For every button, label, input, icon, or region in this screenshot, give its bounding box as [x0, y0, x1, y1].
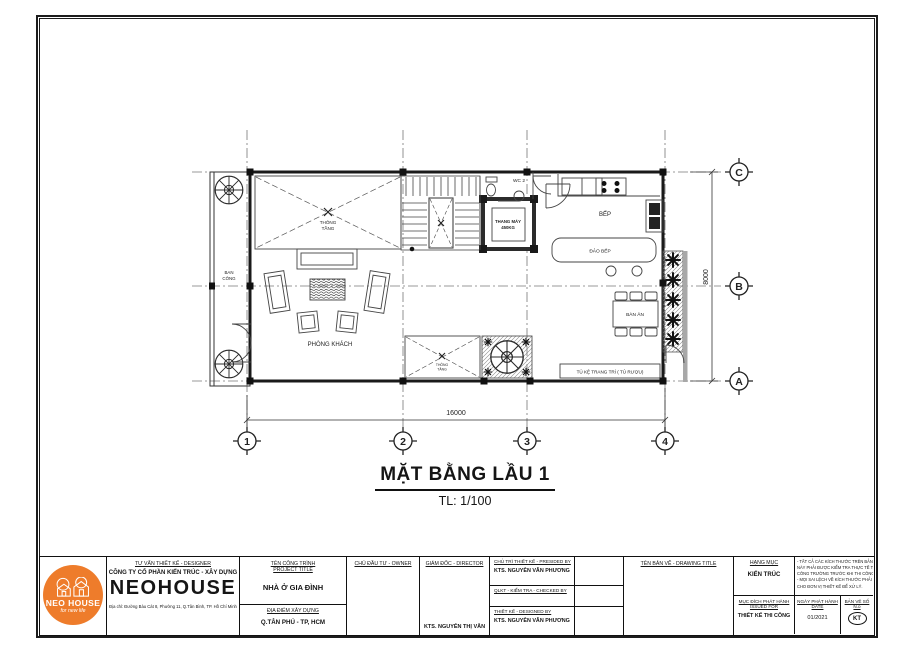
svg-text:THÔNG: THÔNG	[320, 219, 337, 225]
svg-text:8000: 8000	[703, 269, 710, 285]
company-name: NEOHOUSE	[107, 577, 239, 600]
plan-caption: MẶT BẰNG LẦU 1 TL: 1/100	[340, 464, 590, 508]
svg-text:1: 1	[244, 436, 250, 448]
date-cell: NGÀY PHÁT HÀNH DATE 01/2021	[795, 596, 841, 634]
svg-text:2: 2	[400, 436, 406, 448]
director-cell: GIÁM ĐỐC - DIRECTOR KTS. NGUYỄN THỊ VÂN	[420, 557, 490, 635]
designer-heading: TƯ VẤN THIẾT KẾ - DESIGNER	[107, 561, 239, 567]
svg-text:BÀN ĂN: BÀN ĂN	[626, 311, 644, 318]
svg-text:THÔNG: THÔNG	[436, 362, 449, 367]
checked-heading: QLKT - KIỂM TRA - CHECKED BY	[490, 588, 623, 593]
note-line: - MỌI SAI LỆCH VỀ KÍCH THƯỚC PHẢI BÁO	[797, 577, 871, 583]
title-block: NEO HOUSE for new life TƯ VẤN THIẾT KẾ -…	[39, 556, 875, 636]
svg-text:BẾP: BẾP	[599, 211, 611, 218]
planter-square	[482, 336, 532, 378]
svg-text:4: 4	[662, 436, 668, 448]
svg-text:16000: 16000	[446, 410, 466, 417]
number-heading-en: N.o	[841, 604, 873, 609]
designed-name: KTS. NGUYỄN VĂN PHƯƠNG	[490, 618, 623, 624]
svg-text:TẦNG: TẦNG	[322, 225, 335, 231]
director-heading: GIÁM ĐỐC - DIRECTOR	[420, 561, 489, 567]
svg-text:ĐẢO BẾP: ĐẢO BẾP	[589, 248, 610, 255]
company-line: CÔNG TY CỔ PHẦN KIẾN TRÚC - XÂY DỰNG	[107, 570, 239, 576]
balcony-label: CÔNG	[222, 276, 236, 281]
logo-name: NEO HOUSE	[46, 598, 101, 608]
signature-divider	[574, 557, 575, 635]
company-cell: TƯ VẤN THIẾT KẾ - DESIGNER CÔNG TY CỔ PH…	[107, 557, 240, 635]
drawing-title-cell: TÊN BẢN VẼ - DRAWING TITLE	[624, 557, 734, 635]
living-room: PHÒNG KHÁCH	[264, 249, 390, 348]
stairs	[401, 176, 480, 251]
project-cell: TÊN CÔNG TRÌNH PROJECT TITLE NHÀ Ở GIA Đ…	[240, 557, 347, 635]
svg-text:3: 3	[524, 436, 530, 448]
svg-text:TỦ KỆ TRANG TRÍ ( TỦ RƯỢU): TỦ KỆ TRANG TRÍ ( TỦ RƯỢU)	[577, 368, 644, 375]
svg-text:TẦNG: TẦNG	[437, 368, 447, 372]
notes-cell: - TẤT CẢ CÁC KÍCH THƯỚC TRÊN BẢN VẼ NÀY …	[795, 557, 873, 595]
kitchen: BẾP	[546, 174, 663, 232]
issue-info-cell: HẠNG MỤC KIẾN TRÚC - TẤT CẢ CÁC KÍCH THƯ…	[734, 557, 873, 635]
category-value: KIẾN TRÚC	[734, 572, 794, 578]
svg-text:C: C	[735, 167, 743, 179]
shelf: TỦ KỆ TRANG TRÍ ( TỦ RƯỢU)	[560, 364, 660, 378]
drawing-number-cell: BẢN VẼ SỐ N.o KT	[841, 596, 873, 634]
svg-text:WC 2: WC 2	[513, 178, 525, 184]
svg-text:A: A	[735, 376, 743, 388]
houses-icon	[53, 577, 93, 597]
plant-icon	[215, 350, 243, 378]
project-heading-en: PROJECT TITLE	[240, 567, 346, 573]
design-staff-cell: CHỦ TRÌ THIẾT KẾ - PRESIDED BY KTS. NGUY…	[490, 557, 624, 635]
plan-scale: TL: 1/100	[340, 494, 590, 508]
location-heading: ĐỊA ĐIỂM XÂY DỰNG	[240, 608, 346, 614]
void-thong-tang: THÔNG TẦNG	[255, 176, 401, 249]
presided-name: KTS. NGUYỄN VĂN PHƯƠNG	[490, 568, 623, 574]
svg-text:450KG: 450KG	[501, 225, 515, 230]
issued-for-value: THIẾT KẾ THI CÔNG	[734, 613, 794, 619]
category-cell: HẠNG MỤC KIẾN TRÚC	[734, 557, 795, 595]
logo-cell: NEO HOUSE for new life	[40, 557, 107, 635]
drawing-sheet: { "plan": { "title": "MẶT BẰNG LẦU 1", "…	[0, 0, 900, 652]
presided-heading: CHỦ TRÌ THIẾT KẾ - PRESIDED BY	[490, 559, 623, 564]
issued-heading-en: ISSUED FOR	[734, 604, 794, 609]
grid-lines	[192, 130, 721, 432]
drawing-title-heading: TÊN BẢN VẼ - DRAWING TITLE	[624, 561, 733, 567]
drawing-number-badge: KT	[848, 612, 867, 625]
date-heading-en: DATE	[795, 604, 840, 609]
columns	[209, 169, 667, 385]
planter-strip	[663, 251, 688, 382]
svg-text:B: B	[735, 281, 743, 293]
dimension-width: 16000	[244, 388, 668, 427]
owner-heading: CHỦ ĐẦU TƯ - OWNER	[347, 561, 419, 567]
owner-cell: CHỦ ĐẦU TƯ - OWNER	[347, 557, 420, 635]
plant-icon	[215, 176, 243, 204]
plan-title: MẶT BẰNG LẦU 1	[375, 464, 555, 491]
dining-set: BÀN ĂN	[613, 292, 658, 336]
director-name: KTS. NGUYỄN THỊ VÂN	[420, 624, 489, 630]
date-value: 01/2021	[795, 615, 840, 621]
logo-tagline: for new life	[60, 608, 85, 614]
location-value: Q.TÂN PHÚ - TP, HCM	[240, 619, 346, 626]
void-small: THÔNG TẦNG	[405, 336, 480, 378]
elevator: THANG MÁY 450KG	[479, 195, 538, 253]
project-name: NHÀ Ở GIA ĐÌNH	[240, 583, 346, 592]
designed-heading: THIẾT KẾ - DESIGNED BY	[490, 609, 623, 614]
svg-text:PHÒNG KHÁCH: PHÒNG KHÁCH	[308, 341, 353, 348]
balcony-label: BAN	[224, 270, 233, 275]
note-line: CHO ĐƠN VỊ THIẾT KẾ ĐỂ XỬ LÝ.	[797, 584, 871, 590]
company-address: Địa chỉ: Đường Bàu Cát 8, Phường 11, Q.T…	[107, 604, 239, 609]
issued-for-cell: MỤC ĐÍCH PHÁT HÀNH ISSUED FOR THIẾT KẾ T…	[734, 596, 795, 634]
svg-text:THANG MÁY: THANG MÁY	[495, 219, 521, 224]
category-heading: HẠNG MỤC	[734, 560, 794, 566]
dimension-height: 8000	[690, 169, 718, 384]
neohouse-logo: NEO HOUSE for new life	[43, 565, 103, 625]
kitchen-island: ĐẢO BẾP	[552, 238, 656, 276]
